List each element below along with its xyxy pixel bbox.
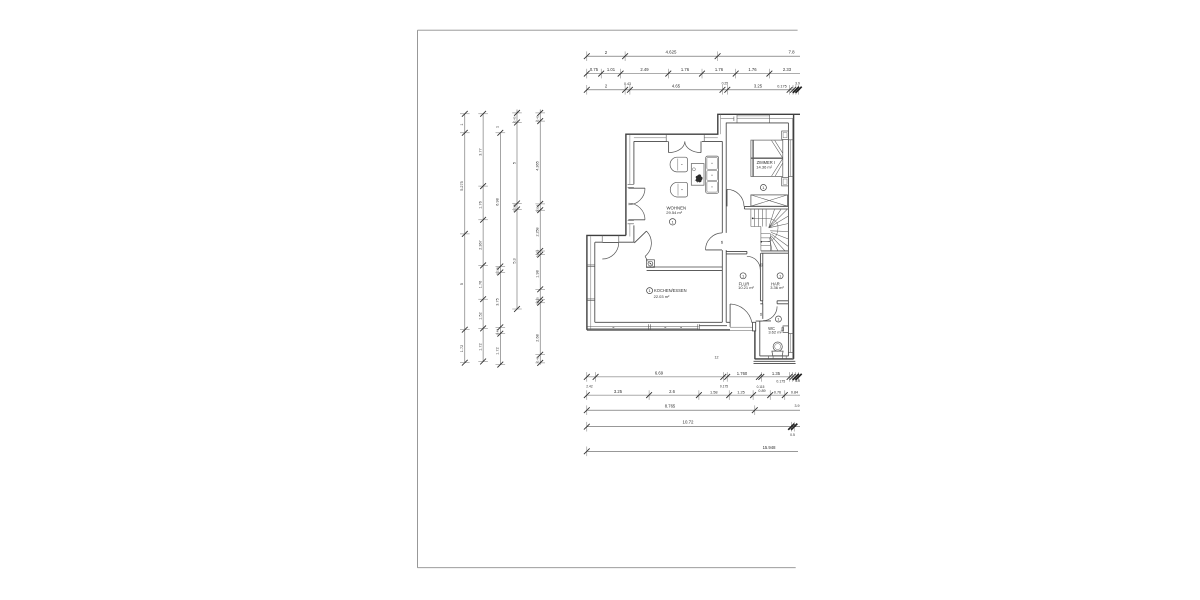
svg-text:1: 1 bbox=[460, 123, 464, 125]
svg-text:0.175: 0.175 bbox=[776, 380, 785, 384]
svg-text:0.315: 0.315 bbox=[536, 204, 540, 212]
svg-text:0.43: 0.43 bbox=[536, 356, 540, 362]
svg-text:1.01: 1.01 bbox=[607, 67, 616, 72]
svg-text:0.76: 0.76 bbox=[774, 390, 781, 394]
svg-text:2.258: 2.258 bbox=[536, 228, 540, 237]
svg-text:1.98: 1.98 bbox=[536, 270, 540, 277]
svg-text:1: 1 bbox=[496, 126, 500, 128]
svg-text:2.367: 2.367 bbox=[479, 240, 483, 250]
svg-text:5.3: 5.3 bbox=[512, 258, 516, 263]
svg-text:1.76: 1.76 bbox=[715, 67, 724, 72]
svg-text:6.98: 6.98 bbox=[496, 198, 500, 205]
svg-text:12: 12 bbox=[715, 356, 719, 360]
svg-text:0.175: 0.175 bbox=[777, 85, 787, 89]
svg-text:2.49: 2.49 bbox=[640, 67, 649, 72]
svg-text:05: 05 bbox=[760, 263, 764, 267]
svg-text:1.76: 1.76 bbox=[748, 67, 757, 72]
svg-text:2.68: 2.68 bbox=[536, 334, 540, 341]
svg-text:0.89: 0.89 bbox=[758, 389, 765, 393]
svg-text:4.65: 4.65 bbox=[672, 84, 681, 89]
svg-text:8.765: 8.765 bbox=[665, 404, 676, 409]
svg-text:04: 04 bbox=[759, 312, 763, 316]
svg-text:3.77: 3.77 bbox=[479, 148, 483, 155]
svg-text:1.52: 1.52 bbox=[479, 312, 483, 319]
svg-text:1.58: 1.58 bbox=[710, 389, 718, 394]
svg-text:3.9: 3.9 bbox=[795, 404, 800, 408]
svg-text:0.84: 0.84 bbox=[791, 390, 798, 394]
svg-text:0.315: 0.315 bbox=[512, 204, 516, 212]
svg-text:7.8: 7.8 bbox=[788, 49, 795, 54]
svg-text:14.36 m²: 14.36 m² bbox=[756, 164, 772, 169]
svg-text:1.25: 1.25 bbox=[737, 389, 745, 394]
svg-text:1.72: 1.72 bbox=[479, 343, 483, 350]
svg-text:0.25: 0.25 bbox=[722, 82, 729, 86]
svg-text:5: 5 bbox=[460, 283, 464, 285]
svg-text:10.21 m²: 10.21 m² bbox=[738, 285, 754, 290]
svg-text:1.760: 1.760 bbox=[737, 371, 748, 376]
svg-text:1.76: 1.76 bbox=[479, 201, 483, 208]
svg-text:0.315: 0.315 bbox=[496, 267, 500, 275]
svg-text:0.75: 0.75 bbox=[590, 67, 599, 72]
svg-text:1.35: 1.35 bbox=[772, 371, 781, 376]
svg-text:1.72: 1.72 bbox=[460, 345, 464, 352]
svg-text:KOCHEN/ESSEN: KOCHEN/ESSEN bbox=[654, 288, 687, 293]
svg-text:3.9: 3.9 bbox=[795, 82, 800, 86]
svg-text:0.49: 0.49 bbox=[496, 329, 500, 335]
svg-text:4.625: 4.625 bbox=[666, 49, 678, 54]
svg-text:3.62 m²: 3.62 m² bbox=[768, 329, 782, 334]
svg-text:1.76: 1.76 bbox=[681, 67, 690, 72]
svg-text:15.948: 15.948 bbox=[763, 445, 776, 450]
svg-text:22.03 m²: 22.03 m² bbox=[654, 294, 670, 299]
svg-text:1.76: 1.76 bbox=[479, 281, 483, 288]
svg-text:0.43: 0.43 bbox=[624, 82, 631, 86]
svg-text:2.6: 2.6 bbox=[669, 389, 675, 394]
svg-text:4.365: 4.365 bbox=[536, 161, 540, 171]
svg-text:0.315: 0.315 bbox=[536, 297, 540, 305]
svg-text:2.42: 2.42 bbox=[586, 384, 593, 388]
svg-text:3.25: 3.25 bbox=[754, 84, 763, 89]
svg-text:0.5: 0.5 bbox=[790, 433, 795, 437]
svg-text:5.275: 5.275 bbox=[460, 181, 464, 191]
svg-text:29.54 m²: 29.54 m² bbox=[666, 210, 682, 215]
svg-text:0.115: 0.115 bbox=[757, 385, 765, 389]
svg-text:0.175: 0.175 bbox=[720, 385, 728, 389]
svg-text:0.315: 0.315 bbox=[536, 249, 540, 257]
svg-text:5: 5 bbox=[512, 162, 516, 164]
svg-text:6.69: 6.69 bbox=[655, 371, 664, 376]
svg-text:1.72: 1.72 bbox=[496, 347, 500, 354]
svg-text:0.43: 0.43 bbox=[512, 116, 516, 122]
svg-text:3.36 m²: 3.36 m² bbox=[770, 285, 784, 290]
svg-text:10.72: 10.72 bbox=[683, 420, 695, 425]
svg-text:5.9: 5.9 bbox=[796, 379, 801, 383]
svg-text:2.33: 2.33 bbox=[783, 67, 792, 72]
svg-text:08: 08 bbox=[720, 240, 724, 244]
svg-text:0.43: 0.43 bbox=[536, 115, 540, 121]
svg-text:3.25: 3.25 bbox=[614, 389, 623, 394]
svg-text:3.75: 3.75 bbox=[496, 298, 500, 305]
